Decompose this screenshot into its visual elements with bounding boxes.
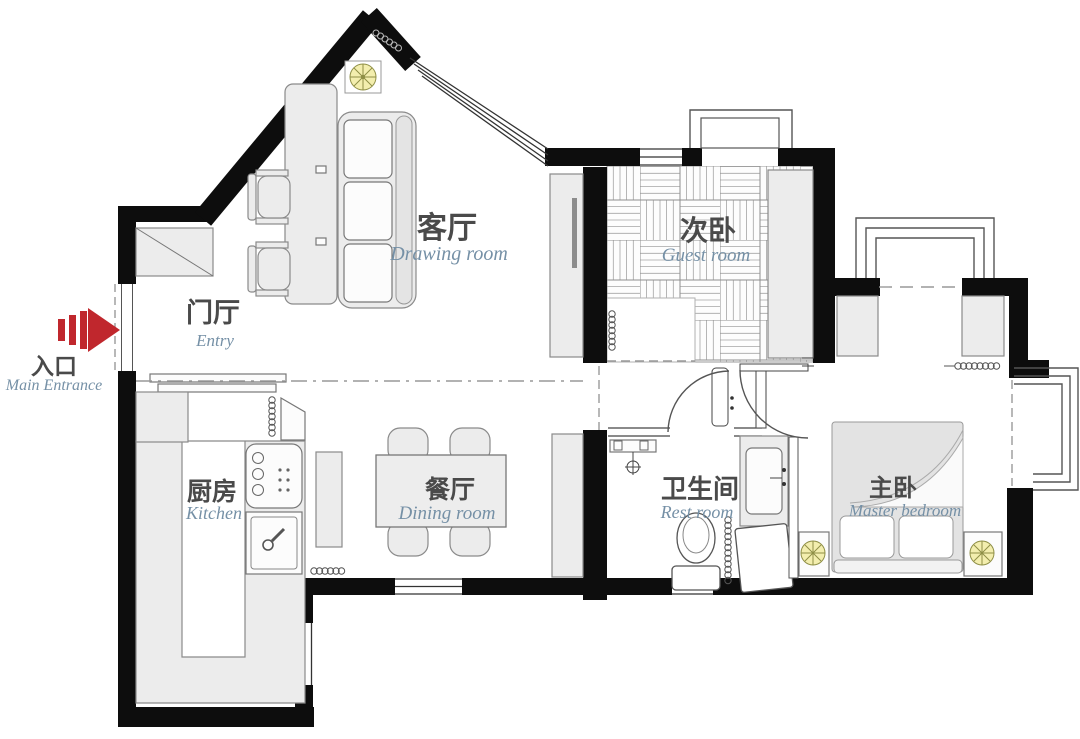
entrance-arrow-icon [58, 308, 120, 352]
label-master-bedroom-zh: 主卧 [869, 474, 917, 502]
floor-plan: 门厅 Entry 入口 Main Entrance 客厅 Drawing roo… [0, 0, 1080, 739]
ceiling-lamp-icon [345, 61, 381, 93]
label-entry-en: Entry [195, 331, 234, 350]
bay-window-master-east [1014, 368, 1078, 490]
window-top [640, 148, 682, 166]
bathroom-door [668, 368, 734, 432]
bay-window-guest-north [690, 110, 792, 166]
label-guest-room-en: Guest room [662, 245, 751, 266]
label-master-bedroom-en: Master bedroom [848, 501, 961, 520]
shoe-cabinet [136, 228, 213, 276]
toilet-icon [672, 513, 720, 590]
vanity-icon [740, 436, 788, 526]
bedside-lamp-icon [970, 541, 994, 565]
label-dining-room-en: Dining room [398, 503, 496, 524]
sofa [338, 112, 416, 308]
master-cabinet-right [962, 296, 1004, 356]
label-dining-room-zh: 餐厅 [425, 475, 475, 504]
pillow [840, 516, 894, 558]
label-rest-room-zh: 卫生间 [661, 475, 739, 505]
dining-side-cabinet [316, 452, 342, 547]
bedside-lamp-icon [801, 541, 825, 565]
desk-chair [248, 242, 290, 296]
kitchen-corner-cabinet [281, 398, 305, 440]
bathroom-sink-icon [610, 440, 656, 475]
window-bottom-dining [395, 578, 462, 595]
label-rest-room-en: Rest room [660, 502, 734, 522]
label-drawing-room-en: Drawing room [389, 243, 508, 265]
stove-icon [246, 444, 302, 508]
label-kitchen-en: Kitchen [185, 503, 242, 523]
guest-wardrobe-left [550, 174, 583, 357]
label-entry-zh: 门厅 [186, 298, 240, 329]
entrance-door [115, 284, 133, 372]
floor-plan-page: 门厅 Entry 入口 Main Entrance 客厅 Drawing roo… [0, 0, 1080, 739]
master-door [740, 358, 814, 438]
label-guest-room-zh: 次卧 [680, 214, 736, 247]
kitchen-sink-icon [246, 512, 302, 574]
guest-wardrobe-right [768, 170, 813, 358]
label-drawing-room-zh: 客厅 [417, 211, 477, 246]
master-cabinet-left [837, 296, 878, 356]
long-desk [285, 84, 337, 304]
label-main-entrance-en: Main Entrance [5, 377, 102, 394]
window-diagonal [410, 58, 548, 166]
bathroom-master-partition [789, 437, 798, 578]
tall-cabinet [552, 434, 583, 577]
washing-machine-icon [735, 523, 793, 592]
pillow [899, 516, 953, 558]
entry-bench [150, 374, 286, 392]
desk-chair [248, 170, 290, 224]
label-kitchen-zh: 厨房 [187, 477, 237, 506]
